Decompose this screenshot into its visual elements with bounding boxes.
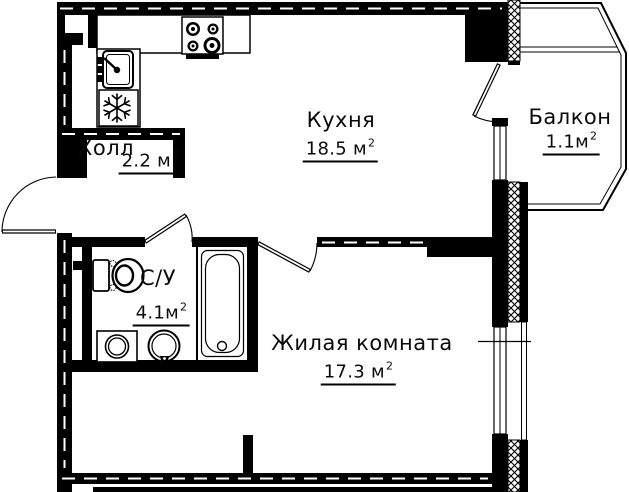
room-label-balcony: Балкон: [529, 105, 612, 129]
room-area-balcony-sup: 2: [590, 130, 597, 143]
room-label-kitchen: Кухня: [307, 108, 376, 132]
room-area-living-room: 17.3 м2: [321, 361, 396, 386]
washing-machine-icon: [97, 331, 137, 362]
room-area-hall-value: 2.2 м: [122, 151, 171, 172]
room-label-living-room: Жилая комната: [271, 331, 452, 355]
fridge-icon: [99, 90, 138, 126]
toilet-icon: [93, 259, 144, 292]
balcony-door-icon: [474, 64, 499, 122]
room-area-kitchen-sup: 2: [368, 137, 375, 150]
room-area-living-room-value: 17.3 м: [324, 362, 385, 383]
room-area-bathroom: 4.1м2: [133, 302, 190, 327]
kitchen-sink-icon: [97, 51, 133, 88]
floor-plan-drawing: [0, 0, 629, 492]
room-area-bathroom-sup: 2: [180, 301, 187, 314]
hatched-walls: [508, 0, 520, 492]
bathroom-sink-icon: [149, 331, 180, 366]
room-area-bathroom-value: 4.1м: [136, 303, 179, 324]
living-room-window-icon: [478, 322, 531, 440]
room-label-bathroom: С/У: [140, 266, 176, 290]
room-area-hall-sup: 2: [172, 149, 179, 162]
room-area-balcony-value: 1.1м: [546, 132, 589, 153]
room-area-balcony: 1.1м2: [543, 131, 600, 156]
kitchen-window-icon: [494, 126, 506, 180]
stove-icon: [182, 17, 223, 59]
room-area-kitchen: 18.5 м2: [303, 138, 378, 163]
room-area-hall: 2.2 м2: [119, 150, 182, 175]
floor-plan: Кухня 18.5 м2 Балкон 1.1м2 Холл 2.2 м2 С…: [0, 0, 629, 492]
bathroom-door-icon: [145, 215, 192, 242]
room-area-kitchen-value: 18.5 м: [306, 139, 367, 160]
bathtub-icon: [197, 246, 248, 361]
living-room-door-icon: [258, 243, 317, 271]
room-area-living-room-sup: 2: [386, 360, 393, 373]
entrance-door-icon: [2, 177, 56, 232]
